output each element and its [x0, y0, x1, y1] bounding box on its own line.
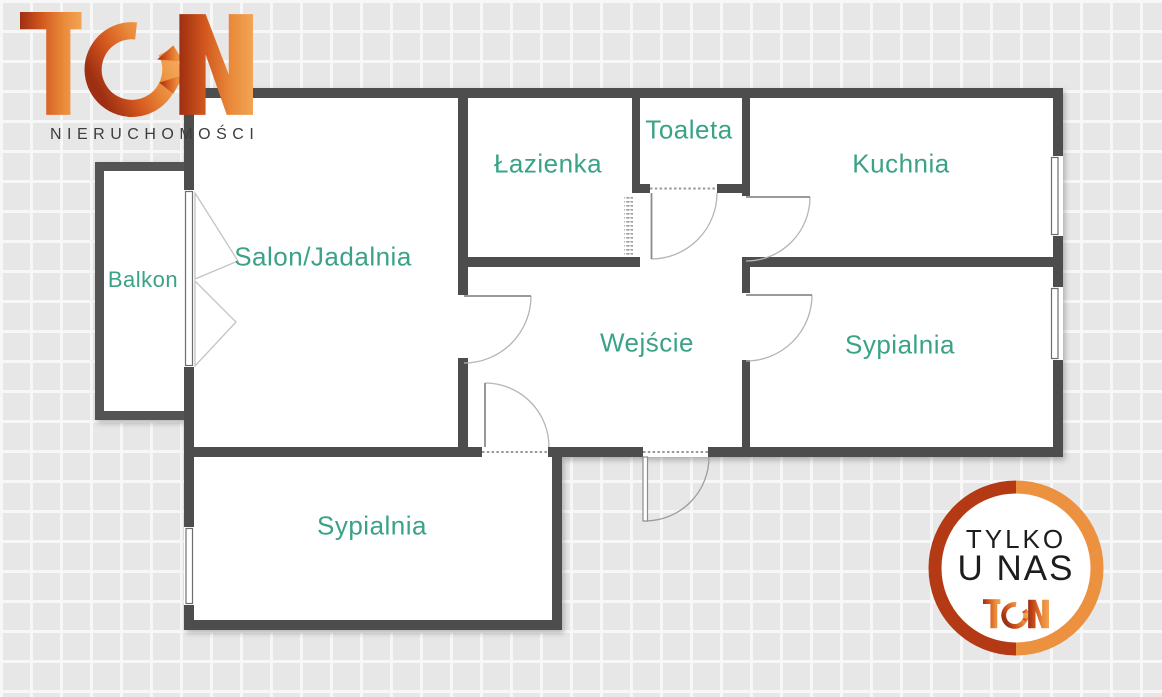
- bedroom-bottom-window: [186, 529, 193, 604]
- room-label-salon: Salon/Jadalnia: [234, 242, 412, 273]
- balcony-door-frame: [186, 192, 193, 366]
- badge-line2: U NAS: [927, 549, 1105, 589]
- tgn-logo-mark: [20, 12, 253, 117]
- room-label-sypialnia-right: Sypialnia: [845, 330, 955, 361]
- room-label-lazienka: Łazienka: [494, 149, 602, 180]
- floorplan-page: { "brand": { "logo_text": "TGN", "subtit…: [0, 0, 1162, 697]
- bedroom-right-window: [1052, 289, 1059, 359]
- room-label-balkon: Balkon: [108, 267, 178, 293]
- kitchen-window: [1052, 158, 1059, 235]
- badge-tgn-logo: [983, 599, 1049, 629]
- brand-subtitle: NIERUCHOMOŚCI: [50, 126, 259, 144]
- room-label-sypialnia-bottom: Sypialnia: [317, 511, 427, 542]
- exclusive-badge: TYLKO U NAS TGN: [927, 479, 1105, 657]
- room-label-wejscie: Wejście: [600, 328, 694, 359]
- entrance-door: [643, 452, 709, 521]
- bathroom-sliding-door: [624, 196, 633, 257]
- room-label-toaleta: Toaleta: [645, 115, 732, 146]
- room-label-kuchnia: Kuchnia: [852, 149, 949, 180]
